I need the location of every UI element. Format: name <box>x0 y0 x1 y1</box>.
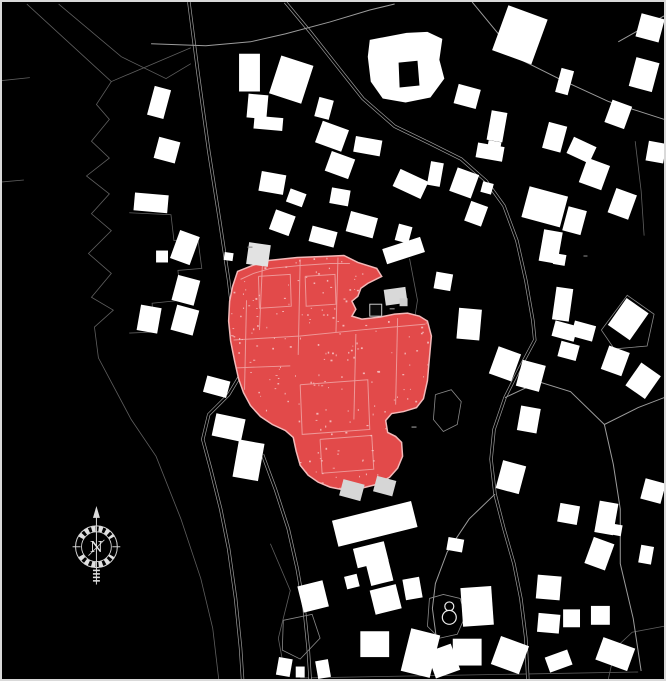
site-speckle <box>371 259 372 260</box>
site-speckle <box>229 485 231 486</box>
site-speckle <box>251 332 252 333</box>
building <box>454 84 481 109</box>
site-speckle <box>235 388 237 390</box>
contour-line <box>300 672 638 678</box>
site-speckle <box>364 256 365 258</box>
site-speckle <box>322 309 323 310</box>
site-speckle <box>353 357 354 359</box>
site-speckle <box>314 385 316 386</box>
site-speckle <box>234 336 236 337</box>
building <box>286 188 307 207</box>
building <box>427 161 444 187</box>
site-speckle <box>295 375 296 377</box>
site-speckle <box>426 275 428 276</box>
building <box>156 251 168 263</box>
building <box>562 206 587 235</box>
site-speckle <box>327 314 328 315</box>
building <box>170 230 200 265</box>
site-speckle <box>372 450 374 451</box>
building <box>584 537 614 571</box>
site-speckle <box>316 413 318 415</box>
site-speckle <box>318 273 320 274</box>
building <box>154 137 181 164</box>
building <box>346 211 378 238</box>
site-speckle <box>233 328 235 329</box>
site-speckle <box>316 420 318 421</box>
site-speckle <box>277 478 278 480</box>
site-speckle <box>376 331 377 332</box>
site-speckle <box>284 444 286 445</box>
building <box>608 298 649 340</box>
circular-structure <box>445 602 454 611</box>
site-speckle <box>276 313 277 314</box>
building <box>276 657 293 677</box>
site-speckle <box>425 465 426 466</box>
site-speckle <box>233 335 234 336</box>
site-speckle <box>234 292 236 294</box>
site-speckle <box>240 316 241 317</box>
site-speckle <box>397 486 399 487</box>
building <box>553 253 567 266</box>
site-speckle <box>307 314 308 316</box>
site-speckle <box>313 383 314 384</box>
site-speckle <box>398 431 400 433</box>
site-speckle <box>352 346 353 347</box>
site-speckle <box>238 352 240 354</box>
road-edge <box>262 454 310 679</box>
site-speckle <box>391 352 392 353</box>
site-speckle <box>402 374 404 375</box>
site-speckle <box>256 425 258 427</box>
site-speckle <box>365 325 367 326</box>
site-speckle <box>280 367 281 368</box>
building <box>400 298 408 306</box>
site-speckle <box>272 348 274 350</box>
building <box>171 305 200 336</box>
site-speckle <box>405 353 406 355</box>
site-speckle <box>373 414 374 416</box>
compass-north-arrow-icon <box>93 506 100 518</box>
site-speckle <box>298 280 300 281</box>
site-speckle <box>229 370 230 371</box>
site-speckle <box>332 317 334 319</box>
site-speckle <box>299 403 300 404</box>
site-speckle <box>276 375 278 376</box>
road-line <box>151 4 395 46</box>
site-speckle <box>267 482 268 484</box>
site-speckle <box>326 258 327 260</box>
site-speckle <box>231 313 232 314</box>
building <box>579 158 610 190</box>
building <box>563 609 580 627</box>
site-speckle <box>282 311 284 312</box>
site-speckle <box>277 463 278 464</box>
site-speckle <box>320 458 321 459</box>
building <box>325 151 355 179</box>
site-speckle <box>292 447 293 448</box>
site-speckle <box>239 342 240 344</box>
site-speckle <box>313 258 315 260</box>
site-speckle <box>336 354 337 356</box>
site-speckle <box>363 373 365 375</box>
site-speckle <box>401 263 402 265</box>
site-speckle <box>245 289 246 290</box>
site-speckle <box>356 342 357 344</box>
site-plan-canvas: N <box>2 2 664 679</box>
site-speckle <box>399 479 400 480</box>
site-speckle <box>266 327 267 329</box>
site-speckle <box>364 256 365 257</box>
site-speckle <box>397 396 398 398</box>
site-speckle <box>336 477 337 478</box>
site-speckle <box>285 474 287 476</box>
site-speckle <box>341 376 343 377</box>
site-speckle <box>309 322 310 323</box>
site-speckle <box>264 267 266 269</box>
site-speckle <box>401 432 403 434</box>
circular-structure <box>442 610 456 624</box>
tiny-annotation-mark <box>248 247 253 248</box>
site-speckle <box>409 365 410 366</box>
site-speckle <box>311 382 312 384</box>
tiny-annotation-mark <box>583 256 587 257</box>
site-speckle <box>291 468 293 469</box>
site-speckle <box>242 339 243 340</box>
parcel-outline <box>433 390 461 432</box>
building <box>247 94 269 119</box>
building <box>370 584 402 615</box>
building <box>315 659 331 679</box>
site-speckle <box>348 352 349 354</box>
building <box>491 636 529 674</box>
site-speckle <box>326 448 328 450</box>
site-speckle <box>407 286 408 287</box>
site-speckle <box>260 396 261 397</box>
site-speckle <box>341 389 342 390</box>
site-speckle <box>421 433 422 434</box>
site-speckle <box>413 432 414 433</box>
building <box>133 192 168 213</box>
site-speckle <box>283 480 284 481</box>
site-speckle <box>299 260 300 262</box>
site-speckle <box>321 460 323 461</box>
building <box>604 100 632 130</box>
building <box>517 406 541 434</box>
site-speckle <box>416 350 418 351</box>
site-speckle <box>403 389 404 390</box>
site-speckle <box>316 271 317 273</box>
site-speckle <box>284 298 286 299</box>
site-speckle <box>314 282 316 284</box>
building <box>434 272 454 292</box>
site-speckle <box>278 378 280 379</box>
building <box>147 86 171 119</box>
building <box>373 476 396 497</box>
site-speckle <box>378 371 380 373</box>
building <box>460 586 493 627</box>
site-speckle <box>331 433 333 435</box>
site-speckle <box>377 293 378 295</box>
site-speckle <box>340 333 341 335</box>
contour-line <box>270 544 290 670</box>
site-speckle <box>354 289 355 290</box>
building <box>297 580 329 612</box>
site-speckle <box>256 345 258 346</box>
site-speckle <box>275 477 276 478</box>
site-speckle <box>393 429 395 431</box>
building <box>545 650 573 673</box>
building <box>233 439 265 481</box>
site-speckle <box>384 411 385 412</box>
site-speckle <box>275 388 277 389</box>
site-speckle <box>338 450 340 451</box>
building <box>610 524 623 537</box>
building <box>487 140 502 154</box>
site-speckle <box>300 338 301 340</box>
building <box>239 54 260 92</box>
building <box>646 141 664 164</box>
site-speckle <box>417 457 419 459</box>
site-speckle <box>256 308 257 309</box>
site-speckle <box>360 308 362 309</box>
building <box>638 545 654 565</box>
site-speckle <box>355 315 356 316</box>
site-speckle <box>357 290 359 291</box>
site-speckle <box>423 376 424 377</box>
site-speckle <box>413 302 415 304</box>
building <box>555 68 574 95</box>
building <box>496 460 527 494</box>
site-speckle <box>324 359 325 360</box>
contour-line <box>27 4 219 679</box>
building <box>629 57 660 92</box>
site-speckle <box>361 257 362 258</box>
site-speckle <box>332 353 334 355</box>
building <box>258 171 286 195</box>
site-speckle <box>274 338 275 339</box>
site-speckle <box>263 436 265 438</box>
outlined-structure <box>370 304 382 316</box>
site-speckle <box>412 443 413 444</box>
site-speckle <box>373 460 374 462</box>
building <box>557 341 579 361</box>
site-speckle <box>279 433 280 434</box>
compass-rose: N <box>73 506 121 585</box>
site-speckle <box>408 478 409 480</box>
site-speckle <box>365 293 367 294</box>
site-speckle <box>421 327 423 329</box>
site-speckle <box>425 400 426 402</box>
contour-line <box>111 48 191 82</box>
parcel-outline <box>282 614 320 659</box>
site-speckle <box>257 325 259 327</box>
site-speckle <box>421 333 423 334</box>
site-speckle <box>289 304 290 306</box>
site-speckle <box>285 338 286 339</box>
building <box>445 651 457 665</box>
site-speckle <box>309 461 311 463</box>
site-speckle <box>250 362 252 363</box>
contour-line <box>635 141 644 235</box>
building <box>393 169 429 199</box>
site-speckle <box>357 348 359 349</box>
site-speckle <box>277 383 279 384</box>
building <box>625 363 661 399</box>
site-plan-map: N <box>0 0 666 681</box>
building <box>571 321 596 342</box>
site-speckle <box>309 319 311 320</box>
site-speckle <box>389 288 390 289</box>
site-speckle <box>302 314 303 315</box>
building <box>344 574 360 590</box>
building <box>492 5 548 64</box>
site-speckle <box>283 435 285 437</box>
building <box>315 121 349 152</box>
site-speckle <box>311 308 312 309</box>
site-speckle <box>288 490 289 491</box>
building <box>542 122 567 153</box>
site-speckle <box>253 300 254 301</box>
site-speckle <box>359 476 360 478</box>
site-speckle <box>388 321 390 323</box>
site-speckle <box>362 461 363 462</box>
site-speckle <box>329 268 330 269</box>
site-speckle <box>334 308 335 310</box>
building <box>480 181 493 194</box>
building <box>635 13 664 42</box>
site-speckle <box>243 293 244 294</box>
site-speckle <box>325 409 327 410</box>
site-speckle <box>320 429 321 431</box>
building <box>402 577 422 600</box>
site-speckle <box>330 360 332 362</box>
site-speckle <box>324 381 326 382</box>
site-speckle <box>316 471 317 472</box>
site-speckle <box>424 280 425 282</box>
building <box>536 575 562 601</box>
site-speckle <box>285 393 286 395</box>
site-speckle <box>326 353 327 355</box>
site-speckle <box>279 369 280 370</box>
site-speckle <box>306 277 308 278</box>
site-speckle <box>377 474 378 476</box>
site-speckle <box>345 432 347 434</box>
site-speckle <box>296 262 297 264</box>
site-speckle <box>426 322 427 323</box>
site-speckle <box>407 398 408 400</box>
site-speckle <box>255 298 257 300</box>
site-speckle <box>426 297 427 298</box>
building <box>269 55 313 103</box>
building <box>640 478 664 504</box>
building <box>591 606 610 625</box>
building <box>360 631 389 657</box>
building <box>332 501 418 547</box>
site-speckle <box>394 400 396 401</box>
site-speckle <box>356 311 358 313</box>
building <box>557 503 580 525</box>
site-speckle <box>377 281 379 283</box>
site-speckle <box>269 379 270 380</box>
site-speckle <box>366 425 368 426</box>
building <box>253 116 283 131</box>
site-speckle <box>263 487 264 488</box>
site-speckle <box>328 387 329 388</box>
site-speckle <box>328 352 329 354</box>
site-speckle <box>323 314 325 315</box>
site-speckle <box>319 374 320 376</box>
building <box>353 136 382 156</box>
site-speckle <box>409 336 410 337</box>
site-speckle <box>346 300 348 302</box>
site-speckle <box>371 381 372 383</box>
contour-line <box>2 78 30 81</box>
site-speckle <box>427 342 429 344</box>
building <box>601 345 630 376</box>
site-speckle <box>321 385 323 386</box>
site-speckle <box>337 453 338 455</box>
site-speckle <box>348 411 349 412</box>
site-speckle <box>349 289 351 291</box>
site-speckle <box>325 426 326 428</box>
site-speckle <box>266 456 268 457</box>
building <box>137 305 162 334</box>
site-speckle <box>342 325 344 327</box>
site-speckle <box>239 338 240 340</box>
site-speckle <box>318 344 320 346</box>
site-speckle <box>354 279 355 280</box>
building <box>552 287 573 322</box>
site-speckle <box>253 328 254 330</box>
site-speckle <box>406 449 407 451</box>
site-speckle <box>410 389 411 390</box>
site-speckle <box>250 372 251 373</box>
site-speckle <box>318 452 319 453</box>
site-speckle <box>299 421 301 423</box>
site-speckle <box>427 257 428 259</box>
site-speckle <box>421 256 422 257</box>
site-speckle <box>347 359 348 361</box>
tiny-annotation-mark <box>412 426 417 427</box>
site-speckle <box>259 295 260 296</box>
site-speckle <box>318 384 319 386</box>
tiny-annotation-mark <box>390 308 395 309</box>
site-speckle <box>287 401 289 402</box>
site-speckle <box>330 287 332 288</box>
site-speckle <box>330 420 332 422</box>
site-speckle <box>415 401 417 403</box>
building <box>309 226 338 248</box>
building-with-courtyard <box>368 32 445 103</box>
road-surface <box>262 454 310 679</box>
building <box>224 252 234 261</box>
contour-line <box>2 180 24 182</box>
compass-north-label: N <box>90 538 103 556</box>
site-speckle <box>322 473 324 474</box>
site-speckle <box>253 360 255 361</box>
building <box>329 187 350 206</box>
site-speckle <box>254 426 256 427</box>
site-speckle <box>337 321 338 322</box>
site-speckle <box>288 285 289 286</box>
site-speckle <box>390 418 391 420</box>
site-speckle <box>362 292 364 293</box>
building <box>595 637 635 671</box>
site-speckle <box>355 276 356 277</box>
site-speckle <box>349 422 351 423</box>
building <box>446 537 464 552</box>
site-speckle <box>284 481 285 482</box>
